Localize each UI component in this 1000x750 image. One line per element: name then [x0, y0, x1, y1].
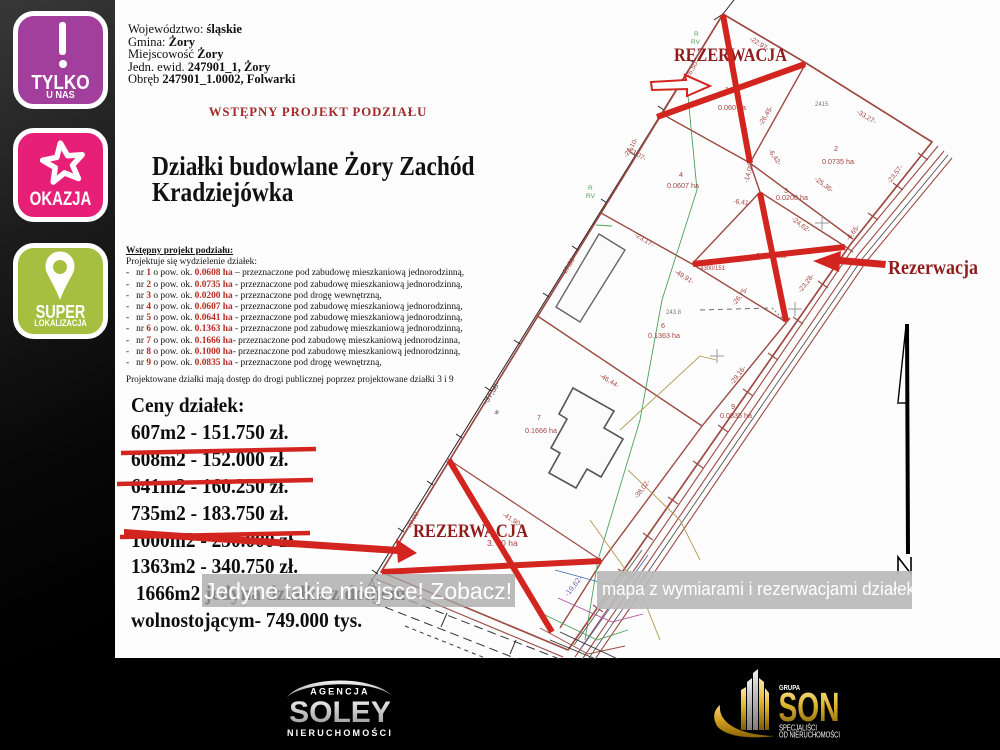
svg-text:-23,17-: -23,17-	[633, 232, 655, 249]
svg-text:-49,91-: -49,91-	[673, 269, 695, 286]
svg-text:0.0200 ha: 0.0200 ha	[776, 193, 808, 202]
svg-text:0.0735 ha: 0.0735 ha	[822, 157, 854, 166]
svg-text:AGENCJA: AGENCJA	[310, 687, 369, 697]
svg-text:-23,57-: -23,57-	[886, 164, 905, 185]
svg-text:NIERUCHOMOŚCI: NIERUCHOMOŚCI	[287, 727, 393, 738]
svg-text:0.0835 ha: 0.0835 ha	[720, 411, 752, 420]
svg-text:0.0607 ha: 0.0607 ha	[667, 181, 699, 190]
svg-text:0.1666 ha: 0.1666 ha	[525, 426, 557, 435]
svg-text:-23,28-: -23,28-	[797, 273, 816, 294]
svg-text:-29,16-: -29,16-	[729, 365, 748, 386]
svg-text:R: R	[588, 185, 593, 192]
svg-text:RV: RV	[691, 39, 701, 46]
svg-text:R: R	[694, 31, 699, 38]
svg-text:-33,27-: -33,27-	[855, 109, 877, 126]
svg-text:9: 9	[731, 402, 735, 411]
svg-text:7: 7	[537, 413, 541, 422]
svg-text:SOLEY: SOLEY	[289, 696, 391, 729]
svg-text:2415: 2415	[815, 102, 829, 108]
svg-text:-6,42-: -6,42-	[766, 148, 782, 167]
svg-text:6: 6	[661, 321, 665, 330]
svg-text:0.1363 ha: 0.1363 ha	[648, 331, 680, 340]
svg-text:4: 4	[679, 170, 683, 179]
svg-text:-25,36-: -25,36-	[813, 176, 835, 194]
svg-text:243.8: 243.8	[666, 310, 682, 316]
svg-text:RV: RV	[586, 193, 596, 200]
svg-text:2: 2	[834, 144, 838, 153]
svg-text:4300/151: 4300/151	[700, 266, 726, 272]
svg-text:OD NIERUCHOMOŚCI: OD NIERUCHOMOŚCI	[779, 729, 840, 740]
svg-text:-46,44-: -46,44-	[598, 373, 620, 390]
svg-text:Rezerwacja: Rezerwacja	[888, 257, 978, 279]
svg-text:w: w	[493, 409, 501, 417]
svg-text:-37,58-: -37,58-	[481, 379, 502, 406]
svg-text:-6,41-: -6,41-	[733, 198, 752, 207]
